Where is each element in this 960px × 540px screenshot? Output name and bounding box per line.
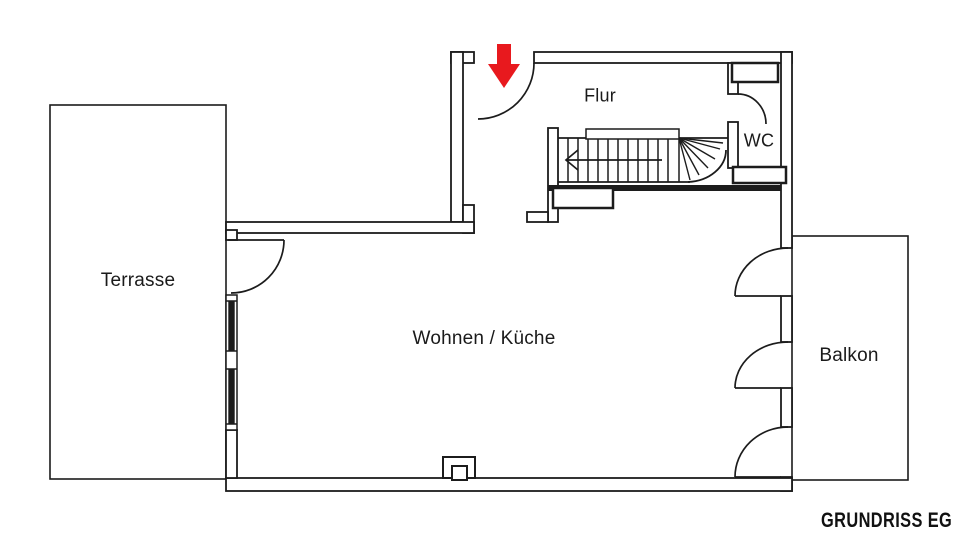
room-label-wohnen-kueche: Wohnen / Küche (413, 328, 556, 350)
window-left-group (226, 295, 237, 430)
room-label-flur: Flur (584, 86, 616, 107)
wall-stair-foot (527, 212, 548, 222)
wall-bottom (226, 478, 792, 491)
wall-right-a (781, 52, 792, 248)
balcony-door-2 (735, 342, 788, 388)
window-glass-1 (228, 301, 234, 351)
wall-left-stub (226, 230, 237, 240)
window-glass-2 (228, 369, 234, 424)
wall-vestibule-left (451, 52, 463, 222)
balcony-door-1 (735, 248, 788, 296)
stair-winder-fan (679, 138, 726, 182)
walls (226, 52, 792, 491)
room-label-terrasse: Terrasse (101, 270, 175, 292)
room-label-balkon: Balkon (819, 345, 878, 367)
wc-upper-niche (732, 63, 778, 82)
wall-right-c (781, 388, 792, 427)
floorplan-page: Terrasse Wohnen / Küche Flur WC Balkon G… (0, 0, 960, 540)
chimney (443, 457, 475, 480)
wc-lower-niche (733, 167, 786, 183)
balcony-door-3 (735, 427, 788, 477)
entrance-arrow-icon (488, 44, 520, 88)
wall-left-lower (226, 430, 237, 478)
stair-handrail (586, 129, 679, 139)
doors (228, 63, 788, 477)
terrasse-outline (50, 105, 226, 479)
wall-livingroom-top (226, 222, 474, 233)
wall-right-b (781, 296, 792, 342)
plan-title: GRUNDRISS EG (821, 509, 952, 533)
wall-flur-top (534, 52, 792, 63)
room-label-wc: WC (744, 131, 774, 152)
wall-wc-lower (728, 122, 738, 168)
terrasse-door (228, 240, 284, 293)
wc-door-arc (738, 94, 766, 124)
understair-niche (553, 188, 613, 208)
staircase (558, 129, 728, 182)
